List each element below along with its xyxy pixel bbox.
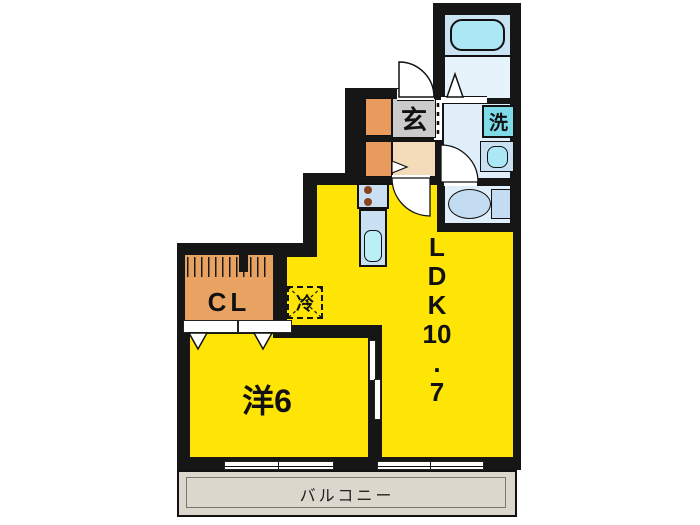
balcony: バルコニー: [177, 470, 517, 517]
washroom-sink-bowl: [487, 146, 508, 168]
closet-center-post: [239, 255, 248, 272]
balcony-label: バルコニー: [300, 482, 395, 506]
western-room-window-rail: [225, 466, 333, 467]
toilet-tank: [491, 189, 511, 219]
closet-hatch: [187, 257, 271, 277]
kitchen-sink: [364, 230, 382, 262]
ldk-door-opening: [392, 175, 430, 184]
entrance-tile: 玄: [392, 98, 436, 138]
balcony-label-box: バルコニー: [179, 472, 515, 515]
washing-machine-label: 洗: [489, 108, 508, 135]
entrance-label: 玄: [401, 100, 427, 137]
shoe-cabinet-lower: [365, 141, 392, 177]
ldk-label-line-6: 7: [410, 378, 464, 407]
ldk-label-line-2: D: [410, 262, 464, 291]
western-room-label-box: 洋6: [197, 378, 337, 420]
closet-label-box: CL: [189, 288, 269, 316]
ldk-label-line-5: .: [410, 349, 464, 378]
washing-machine: 洗: [482, 105, 515, 138]
refrigerator-spot: 冷: [287, 286, 323, 319]
floorplan-canvas: { "plan": { "title": "1LDK apartment flo…: [0, 0, 700, 525]
western-room-window: [224, 461, 334, 470]
ldk-label-line-3: K: [410, 291, 464, 320]
kitchen-burner-dot-1: [364, 186, 372, 194]
ldk-window-divider: [430, 462, 431, 469]
ldk-window: [377, 461, 484, 470]
refrigerator-label: 冷: [296, 290, 314, 316]
room-divider-sliding-door-panel-1: [369, 340, 376, 381]
ldk-label-line-1: L: [410, 233, 464, 262]
entrance-hall-floor: [392, 141, 436, 177]
room-divider-sliding-door-panel-2: [374, 379, 381, 420]
toilet-bowl: [448, 189, 491, 219]
toilet-door-opening: [444, 177, 477, 186]
front-door-opening: [397, 88, 434, 101]
closet-label: CL: [208, 287, 251, 318]
western-room-label: 洋6: [242, 376, 292, 422]
bathtub: [450, 19, 505, 51]
ldk-label: L D K 10 . 7: [410, 233, 464, 407]
closet-door-track-divider: [237, 321, 239, 332]
ldk-label-line-4: 10: [410, 320, 464, 349]
shoe-cabinet-upper: [365, 98, 392, 136]
bathroom-door-threshold: [441, 96, 487, 104]
kitchen-burner-dot-2: [364, 198, 372, 206]
kitchen-burner-unit: [357, 183, 389, 209]
western-room-window-divider: [278, 462, 279, 469]
